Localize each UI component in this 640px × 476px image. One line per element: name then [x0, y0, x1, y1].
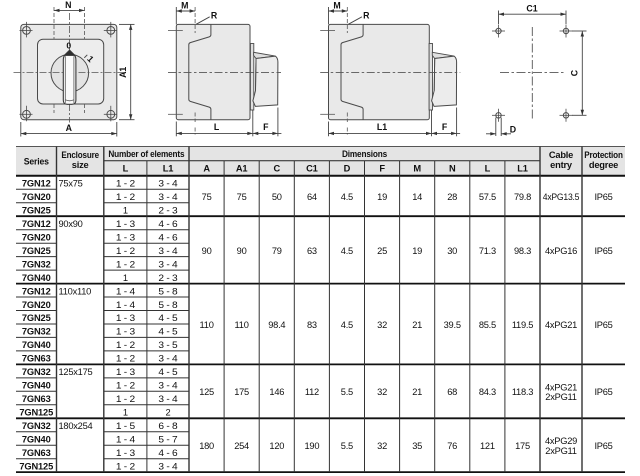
svg-text:76: 76 — [447, 441, 457, 451]
svg-text:N: N — [65, 0, 71, 10]
svg-text:110: 110 — [200, 320, 214, 330]
svg-text:L: L — [485, 164, 491, 174]
svg-text:L1: L1 — [377, 122, 387, 132]
svg-text:7GN40: 7GN40 — [22, 381, 51, 391]
svg-text:32: 32 — [377, 441, 387, 451]
svg-text:A: A — [203, 164, 210, 174]
svg-text:R: R — [363, 11, 370, 21]
svg-text:A1: A1 — [118, 67, 128, 78]
svg-text:L1: L1 — [163, 164, 173, 174]
svg-text:90: 90 — [202, 246, 212, 256]
svg-text:32: 32 — [377, 387, 387, 397]
svg-text:7GN40: 7GN40 — [22, 340, 51, 350]
svg-text:C: C — [570, 69, 580, 76]
svg-text:7GN12: 7GN12 — [22, 179, 51, 189]
svg-text:3 - 4: 3 - 4 — [158, 259, 177, 269]
svg-text:4 - 6: 4 - 6 — [158, 219, 177, 229]
svg-text:90: 90 — [237, 246, 247, 256]
svg-text:125: 125 — [199, 387, 214, 397]
svg-text:4 - 6: 4 - 6 — [158, 232, 177, 242]
svg-text:0: 0 — [66, 41, 71, 51]
svg-text:7GN63: 7GN63 — [22, 354, 51, 364]
svg-text:R: R — [211, 11, 218, 21]
svg-text:C: C — [274, 164, 281, 174]
svg-text:3 - 4: 3 - 4 — [158, 192, 177, 202]
svg-text:119.5: 119.5 — [512, 320, 533, 330]
svg-text:1 - 2: 1 - 2 — [116, 259, 135, 269]
svg-text:5 - 8: 5 - 8 — [158, 300, 177, 310]
svg-text:size: size — [72, 160, 89, 170]
svg-text:7GN63: 7GN63 — [22, 448, 51, 458]
svg-text:7GN20: 7GN20 — [22, 232, 51, 242]
svg-text:7GN32: 7GN32 — [22, 259, 51, 269]
svg-text:79.8: 79.8 — [514, 192, 531, 202]
svg-text:L1: L1 — [517, 164, 527, 174]
svg-text:112: 112 — [305, 387, 319, 397]
svg-text:Cable: Cable — [549, 150, 573, 160]
svg-text:IP65: IP65 — [594, 387, 612, 397]
svg-text:2 - 3: 2 - 3 — [158, 206, 177, 216]
svg-text:118.3: 118.3 — [512, 387, 533, 397]
svg-text:Number of elements: Number of elements — [108, 149, 184, 159]
svg-text:C1: C1 — [306, 164, 318, 174]
svg-text:A1: A1 — [236, 164, 248, 174]
svg-text:2: 2 — [165, 408, 170, 418]
svg-text:Series: Series — [24, 156, 49, 166]
svg-text:120: 120 — [269, 441, 284, 451]
svg-text:7GN125: 7GN125 — [19, 408, 53, 418]
svg-text:M: M — [413, 164, 421, 174]
svg-text:5 - 8: 5 - 8 — [158, 286, 177, 296]
svg-text:6 - 8: 6 - 8 — [158, 421, 177, 431]
svg-text:3 - 5: 3 - 5 — [158, 340, 177, 350]
svg-text:85.5: 85.5 — [479, 320, 496, 330]
svg-text:1 - 2: 1 - 2 — [116, 246, 135, 256]
svg-text:2 - 3: 2 - 3 — [158, 273, 177, 283]
svg-text:3 - 4: 3 - 4 — [158, 179, 177, 189]
svg-text:IP65: IP65 — [594, 320, 612, 330]
svg-text:14: 14 — [412, 192, 422, 202]
svg-text:4 - 5: 4 - 5 — [158, 327, 177, 337]
svg-text:2xPG11: 2xPG11 — [545, 392, 576, 402]
svg-text:1 - 4: 1 - 4 — [116, 435, 135, 445]
svg-text:110x110: 110x110 — [59, 286, 92, 296]
svg-text:98.3: 98.3 — [514, 246, 531, 256]
svg-text:7GN40: 7GN40 — [22, 435, 51, 445]
svg-text:21: 21 — [412, 320, 422, 330]
svg-text:3 - 4: 3 - 4 — [158, 394, 177, 404]
svg-text:4 - 5: 4 - 5 — [158, 313, 177, 323]
svg-text:4 - 5: 4 - 5 — [158, 367, 177, 377]
svg-text:25: 25 — [377, 246, 387, 256]
svg-text:121: 121 — [480, 441, 495, 451]
svg-text:19: 19 — [412, 246, 422, 256]
svg-text:F: F — [379, 164, 385, 174]
svg-text:1 - 2: 1 - 2 — [116, 340, 135, 350]
svg-text:Enclosure: Enclosure — [61, 150, 99, 160]
svg-text:A: A — [66, 123, 73, 133]
svg-text:1 - 2: 1 - 2 — [116, 354, 135, 364]
svg-text:7GN25: 7GN25 — [22, 206, 51, 216]
svg-text:7GN25: 7GN25 — [22, 313, 51, 323]
svg-text:75: 75 — [237, 192, 247, 202]
svg-text:7GN25: 7GN25 — [22, 246, 51, 256]
svg-text:N: N — [449, 164, 456, 174]
svg-text:IP65: IP65 — [594, 441, 612, 451]
svg-text:3 - 4: 3 - 4 — [158, 246, 177, 256]
svg-text:degree: degree — [589, 160, 618, 170]
svg-text:3 - 4: 3 - 4 — [158, 381, 177, 391]
svg-text:7GN32: 7GN32 — [22, 327, 51, 337]
svg-text:IP65: IP65 — [594, 246, 612, 256]
svg-text:4xPG13.5: 4xPG13.5 — [543, 192, 580, 202]
svg-text:1 - 2: 1 - 2 — [116, 192, 135, 202]
svg-text:175: 175 — [234, 387, 249, 397]
svg-text:F: F — [442, 122, 448, 132]
svg-text:28: 28 — [447, 192, 457, 202]
svg-text:110: 110 — [235, 320, 249, 330]
svg-text:64: 64 — [307, 192, 317, 202]
svg-text:5.5: 5.5 — [341, 441, 353, 451]
svg-text:4xPG21: 4xPG21 — [545, 320, 577, 330]
svg-text:7GN32: 7GN32 — [22, 421, 51, 431]
svg-text:1 - 5: 1 - 5 — [116, 421, 135, 431]
svg-text:1 - 2: 1 - 2 — [116, 179, 135, 189]
svg-text:D: D — [344, 164, 351, 174]
svg-text:71.3: 71.3 — [479, 246, 496, 256]
svg-text:4xPG21: 4xPG21 — [545, 382, 577, 392]
svg-text:190: 190 — [305, 441, 320, 451]
svg-text:1 - 3: 1 - 3 — [116, 232, 135, 242]
svg-text:C1: C1 — [526, 4, 537, 14]
svg-text:entry: entry — [550, 160, 573, 170]
svg-text:1 - 3: 1 - 3 — [116, 327, 135, 337]
svg-text:Dimensions: Dimensions — [342, 149, 387, 159]
svg-text:175: 175 — [515, 441, 530, 451]
svg-text:1 - 4: 1 - 4 — [116, 286, 135, 296]
svg-text:7GN63: 7GN63 — [22, 394, 51, 404]
svg-text:7GN20: 7GN20 — [22, 192, 51, 202]
svg-text:180x254: 180x254 — [59, 421, 93, 431]
svg-text:1 - 3: 1 - 3 — [116, 313, 135, 323]
svg-text:79: 79 — [272, 246, 282, 256]
svg-text:3 - 4: 3 - 4 — [158, 461, 177, 471]
svg-text:1 - 3: 1 - 3 — [116, 367, 135, 377]
svg-text:35: 35 — [412, 441, 422, 451]
svg-text:1 - 3: 1 - 3 — [116, 448, 135, 458]
svg-text:7GN12: 7GN12 — [22, 286, 51, 296]
svg-text:L: L — [214, 122, 220, 132]
svg-text:1: 1 — [123, 408, 128, 418]
svg-text:IP65: IP65 — [594, 192, 612, 202]
svg-text:7GN12: 7GN12 — [22, 219, 51, 229]
svg-text:3 - 4: 3 - 4 — [158, 354, 177, 364]
svg-text:7GN40: 7GN40 — [22, 273, 51, 283]
svg-text:75: 75 — [202, 192, 212, 202]
svg-text:5.5: 5.5 — [341, 387, 353, 397]
svg-text:5 - 7: 5 - 7 — [158, 435, 177, 445]
svg-text:84.3: 84.3 — [479, 387, 496, 397]
svg-text:125x175: 125x175 — [59, 367, 93, 377]
svg-text:21: 21 — [412, 387, 422, 397]
svg-text:254: 254 — [234, 441, 249, 451]
svg-text:4xPG16: 4xPG16 — [545, 246, 577, 256]
svg-text:83: 83 — [307, 320, 317, 330]
svg-text:30: 30 — [447, 246, 457, 256]
svg-text:19: 19 — [377, 192, 387, 202]
svg-text:4xPG29: 4xPG29 — [545, 436, 577, 446]
svg-text:2xPG11: 2xPG11 — [545, 446, 576, 456]
svg-text:1 - 3: 1 - 3 — [116, 219, 135, 229]
svg-text:1 - 2: 1 - 2 — [116, 381, 135, 391]
svg-text:M: M — [333, 0, 340, 10]
svg-text:Protection: Protection — [584, 150, 623, 160]
svg-text:1 - 2: 1 - 2 — [116, 394, 135, 404]
svg-text:68: 68 — [447, 387, 457, 397]
svg-text:M: M — [181, 0, 188, 10]
svg-text:1 - 4: 1 - 4 — [116, 300, 135, 310]
svg-text:4.5: 4.5 — [341, 246, 353, 256]
svg-text:4 - 6: 4 - 6 — [158, 448, 177, 458]
svg-text:1 - 2: 1 - 2 — [116, 461, 135, 471]
svg-text:98.4: 98.4 — [268, 320, 285, 330]
svg-text:32: 32 — [377, 320, 387, 330]
svg-text:L: L — [123, 164, 129, 174]
svg-text:63: 63 — [307, 246, 317, 256]
svg-text:7GN125: 7GN125 — [19, 461, 53, 471]
svg-text:57.5: 57.5 — [479, 192, 496, 202]
svg-text:50: 50 — [272, 192, 282, 202]
svg-text:D: D — [510, 125, 516, 135]
svg-text:1: 1 — [123, 273, 128, 283]
svg-text:39.5: 39.5 — [444, 320, 461, 330]
svg-text:146: 146 — [269, 387, 284, 397]
svg-text:1: 1 — [123, 206, 128, 216]
svg-text:90x90: 90x90 — [59, 219, 83, 229]
svg-text:7GN20: 7GN20 — [22, 300, 51, 310]
svg-text:7GN32: 7GN32 — [22, 367, 51, 377]
svg-text:75x75: 75x75 — [59, 179, 83, 189]
svg-text:F: F — [263, 122, 269, 132]
svg-text:180: 180 — [199, 441, 214, 451]
svg-text:4.5: 4.5 — [341, 192, 353, 202]
svg-text:4.5: 4.5 — [341, 320, 353, 330]
